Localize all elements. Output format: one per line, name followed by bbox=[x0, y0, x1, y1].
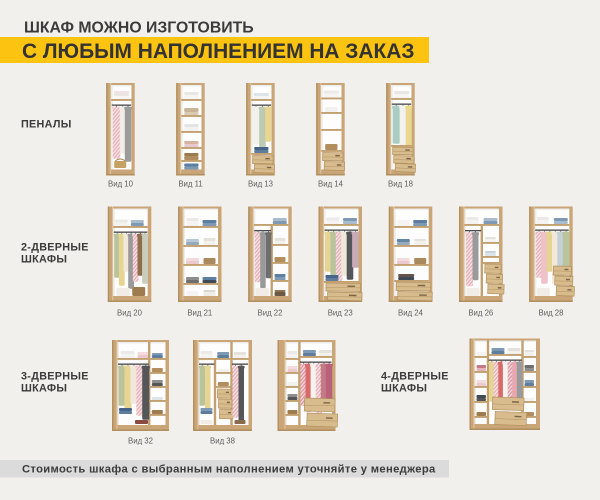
svg-text:Вид 18: Вид 18 bbox=[388, 180, 413, 189]
svg-text:4-ДВЕРНЫЕ: 4-ДВЕРНЫЕ bbox=[381, 371, 449, 383]
svg-text:ШКАФЫ: ШКАФЫ bbox=[381, 383, 427, 395]
svg-text:Вид 10: Вид 10 bbox=[108, 180, 134, 189]
svg-text:Вид 20: Вид 20 bbox=[117, 309, 143, 318]
svg-text:3-ДВЕРНЫЕ: 3-ДВЕРНЫЕ bbox=[21, 371, 89, 383]
svg-text:ШКАФЫ: ШКАФЫ bbox=[21, 254, 67, 266]
svg-text:ШКАФ МОЖНО ИЗГОТОВИТЬ: ШКАФ МОЖНО ИЗГОТОВИТЬ bbox=[24, 19, 254, 36]
svg-text:Вид 21: Вид 21 bbox=[187, 309, 212, 318]
svg-text:Вид 38: Вид 38 bbox=[210, 437, 235, 446]
svg-text:2-ДВЕРНЫЕ: 2-ДВЕРНЫЕ bbox=[21, 242, 89, 254]
svg-text:Вид 26: Вид 26 bbox=[468, 309, 493, 318]
svg-text:Стоимость шкафа с выбранным на: Стоимость шкафа с выбранным наполнением … bbox=[22, 464, 436, 476]
svg-text:Вид 24: Вид 24 bbox=[398, 309, 424, 318]
svg-text:ШКАФЫ: ШКАФЫ bbox=[21, 383, 67, 395]
svg-text:Вид 28: Вид 28 bbox=[539, 309, 564, 318]
svg-text:Вид 14: Вид 14 bbox=[318, 180, 344, 189]
svg-text:Вид 23: Вид 23 bbox=[328, 309, 353, 318]
svg-text:ПЕНАЛЫ: ПЕНАЛЫ bbox=[21, 119, 72, 131]
svg-text:Вид 32: Вид 32 bbox=[128, 437, 153, 446]
svg-text:Вид 22: Вид 22 bbox=[258, 309, 283, 318]
svg-text:Вид 11: Вид 11 bbox=[178, 180, 202, 189]
svg-text:Вид 13: Вид 13 bbox=[248, 180, 273, 189]
svg-text:С ЛЮБЫМ НАПОЛНЕНИЕМ НА ЗАКАЗ: С ЛЮБЫМ НАПОЛНЕНИЕМ НА ЗАКАЗ bbox=[22, 40, 414, 63]
